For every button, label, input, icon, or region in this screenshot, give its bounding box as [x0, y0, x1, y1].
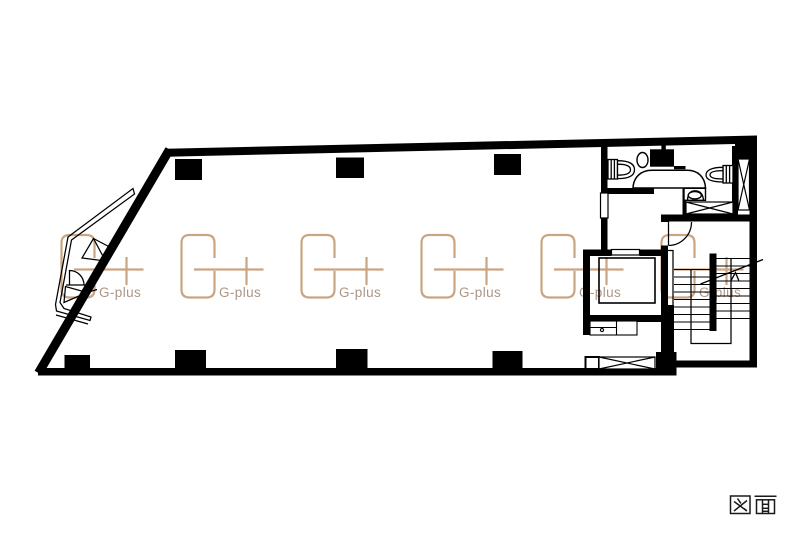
svg-text:G-plus: G-plus [339, 285, 381, 300]
svg-text:G-plus: G-plus [219, 285, 261, 300]
svg-text:G-plus: G-plus [699, 285, 741, 300]
svg-text:G-plus: G-plus [579, 285, 621, 300]
svg-text:G-plus: G-plus [459, 285, 501, 300]
svg-text:G-plus: G-plus [99, 285, 141, 300]
